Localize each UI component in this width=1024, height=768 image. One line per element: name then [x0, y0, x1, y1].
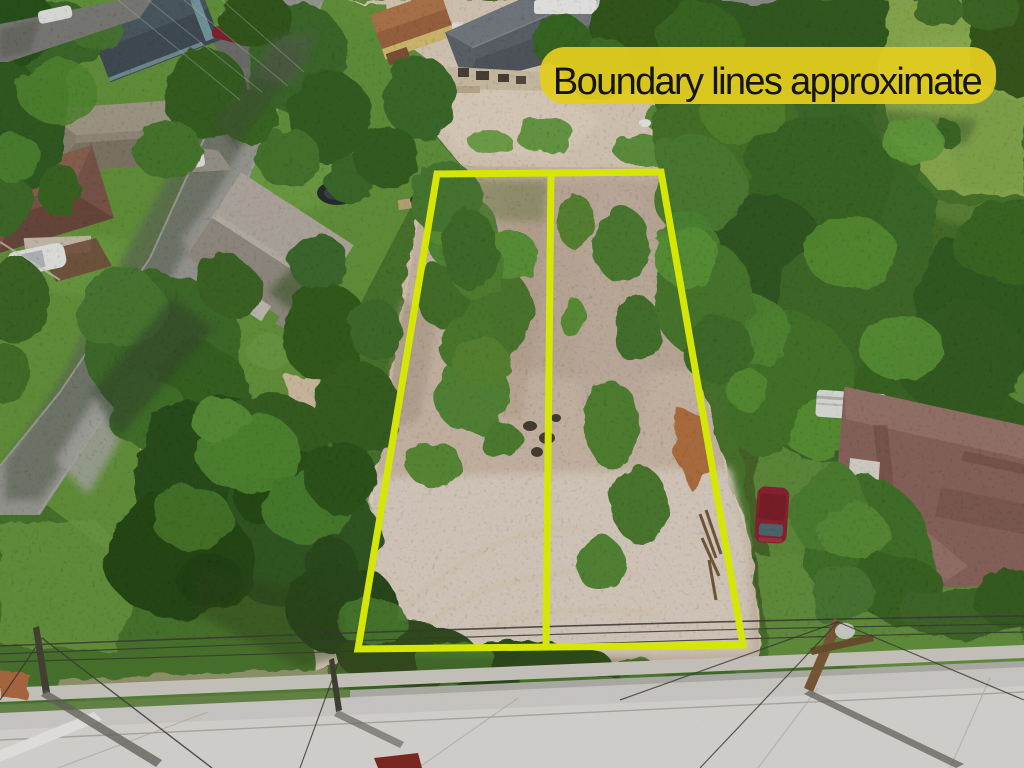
svg-text:Boundary lines approximate: Boundary lines approximate	[553, 61, 982, 103]
